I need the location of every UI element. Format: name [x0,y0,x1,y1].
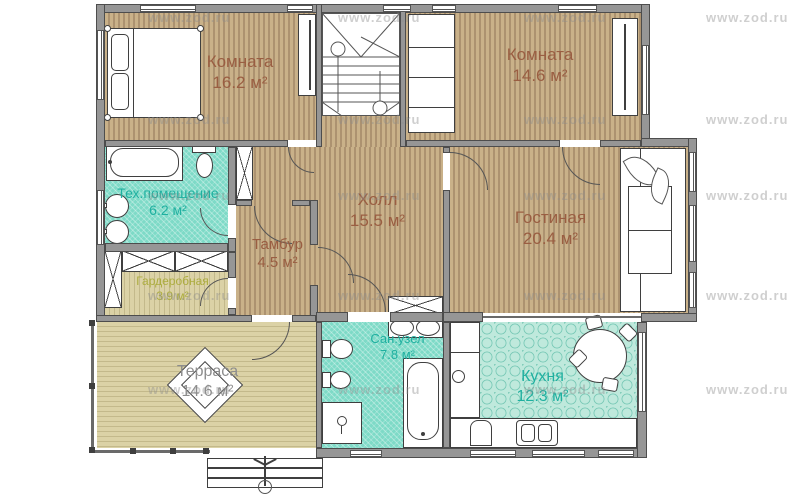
window [532,450,585,457]
room-label-terrace: Терраса 14.6 м² [150,362,265,401]
wall [390,312,443,322]
window [383,5,411,12]
railing-post [170,448,176,454]
window [689,205,696,262]
room-name: Сан.узел [350,331,445,347]
room-label-tambour: Тамбур 4.5 м² [240,236,315,273]
water-heater-symbol [337,416,347,426]
wall [105,140,288,147]
railing-post [89,383,95,389]
wall [292,200,310,206]
window [558,5,597,12]
room-label-hall: Холл 15.5 м² [330,190,425,231]
wall [443,147,450,153]
terrace-railing [91,450,210,453]
door-opening [560,140,600,147]
window [638,332,646,412]
room-name: Тех.помещение [108,185,228,202]
railing-post [130,448,136,454]
room-area: 12.3 м² [485,387,600,407]
room-label-bathroom: Сан.узел 7.8 м² [350,331,445,363]
room-area: 4.5 м² [240,254,315,272]
faucet [108,160,112,164]
wall [105,243,228,252]
toilet-bowl [196,153,213,178]
closet [122,250,175,272]
kitchen-sink [452,370,465,383]
room-name: Холл [330,190,425,211]
watermark: www.zod.ru [706,382,788,397]
wardrobe-door-line [624,24,626,110]
wall [600,140,641,147]
closet [236,146,253,200]
room-label-bedroom2: Комната 14.6 м² [475,45,605,86]
bed-post [197,25,204,32]
sofa-cushion-line [640,274,641,311]
watermark: www.zod.ru [706,188,788,203]
room-name: Комната [475,45,605,66]
door-opening [252,315,292,322]
room-area: 14.6 м² [475,66,605,87]
bathtub-drain [421,432,425,436]
bed-post [197,114,204,121]
wall [228,238,236,252]
entry-arrow-origin [258,480,272,494]
railing-post [89,447,95,453]
stove-burner [521,424,535,442]
room-name: Терраса [150,362,265,382]
window [97,190,104,245]
room-area: 15.5 м² [330,211,425,232]
room-area: 7.8 м² [350,347,445,363]
wall [641,313,697,322]
wall [228,252,236,278]
railing-post [89,320,95,326]
counter-divider [451,352,479,353]
room-name: Гостиная [488,208,613,229]
wall [316,312,348,322]
window [140,5,196,12]
wardrobe-shelf-line [409,47,454,48]
sofa-cushion-line [628,230,672,231]
watermark: www.zod.ru [706,112,788,127]
bidet-bowl [330,371,351,389]
bed-pillow [111,73,129,110]
wall [443,312,483,322]
wall [443,190,450,318]
room-label-tech: Тех.помещение 6.2 м² [108,185,228,219]
window [350,450,382,457]
watermark: www.zod.ru [706,288,788,303]
watermark: www.zod.ru [706,10,788,25]
door-opening [288,140,314,147]
wardrobe-door-line [309,20,311,90]
floor-plan: Комната 16.2 м² Комната 14.6 м² Тех.поме… [0,0,795,496]
wardrobe-shelf-line [409,107,454,108]
wall [228,147,236,205]
bed-blanket-line [133,29,134,117]
staircase [322,13,400,116]
room-area: 3.9 м² [120,289,225,304]
bed-post [104,25,111,32]
window [689,272,696,308]
room-area: 6.2 м² [108,202,228,219]
room-label-wardrobe: Гардеробная 3.9 м² [120,274,225,303]
washbasin [105,220,129,244]
wardrobe-cabinet [408,14,455,133]
wall [96,315,252,322]
window [432,5,456,12]
window [287,5,313,12]
wall [406,140,560,147]
window [689,152,696,192]
wall [228,308,236,315]
floor-transition-line [483,316,641,318]
bathtub-inner [407,362,439,440]
room-label-living: Гостиная 20.4 м² [488,208,613,249]
window [642,45,649,115]
water-heater-symbol-leg [341,426,342,434]
wall [400,4,406,147]
bed-post [104,114,111,121]
room-name: Гардеробная [120,274,225,289]
wardrobe-shelf-line [409,77,454,78]
room-label-kitchen: Кухня 12.3 м² [485,367,600,406]
room-name: Комната [175,52,305,73]
door-opening [348,312,390,322]
room-name: Тамбур [240,236,315,254]
window [470,450,516,457]
window [97,30,104,100]
wall [316,4,322,147]
wall [292,315,316,322]
refrigerator [470,420,492,446]
room-area: 16.2 м² [175,73,305,94]
floor-stair-landing [322,116,400,147]
bathtub-inner [110,148,179,177]
closet [175,250,228,272]
room-label-bedroom1: Комната 16.2 м² [175,52,305,93]
bed-pillow [111,34,129,71]
wall [316,322,322,448]
room-area: 20.4 м² [488,229,613,250]
room-name: Кухня [485,367,600,387]
room-area: 14.6 м² [150,382,265,402]
railing-post [203,448,209,454]
wall [236,200,252,206]
chair [601,377,619,393]
stove-burner [538,424,552,442]
window [598,450,634,457]
